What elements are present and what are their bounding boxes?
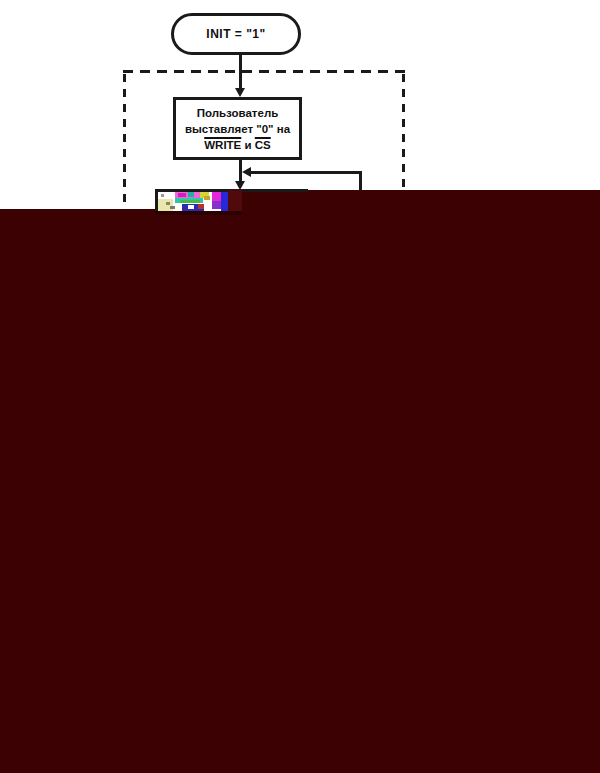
glitch-block xyxy=(212,201,221,209)
glitch-block xyxy=(204,196,210,200)
glitch-block xyxy=(212,192,221,201)
corruption-overlay-left xyxy=(0,209,155,773)
glitch-block xyxy=(198,204,204,209)
glitch-block xyxy=(188,192,194,197)
process-line-2: выставляет "0" на xyxy=(185,121,290,137)
conjunction-label: и xyxy=(245,139,255,151)
feedback-line-horizontal xyxy=(248,171,362,174)
glitch-block xyxy=(188,205,194,209)
process-line-3: WRITE и CS xyxy=(204,137,271,153)
dashed-frame-left xyxy=(123,74,126,209)
glitch-block xyxy=(170,206,175,209)
glitch-block xyxy=(166,202,170,205)
process-line-1: Пользователь xyxy=(197,105,279,121)
glitch-block xyxy=(158,199,173,211)
glitch-block xyxy=(221,192,228,211)
corruption-overlay-right xyxy=(155,190,600,773)
feedback-line-vertical xyxy=(359,171,362,191)
glitch-dark-strip xyxy=(155,211,242,215)
glitch-maroon-patch xyxy=(228,190,242,211)
glitch-block xyxy=(180,200,200,203)
arrowhead-left-icon xyxy=(242,167,251,177)
terminator-init: INIT = "1" xyxy=(171,13,301,55)
signal-write-label: WRITE xyxy=(204,139,241,151)
glitch-block xyxy=(178,193,186,197)
dashed-frame-right xyxy=(402,74,405,190)
terminator-label: INIT = "1" xyxy=(206,27,265,41)
signal-cs-label: CS xyxy=(255,139,271,151)
arrowhead-down-icon xyxy=(235,88,245,97)
glitch-block xyxy=(161,194,164,197)
process-box-user-write: Пользователь выставляет "0" на WRITE и C… xyxy=(173,97,302,160)
scanned-flowchart-page: INIT = "1" Пользователь выставляет "0" н… xyxy=(0,0,600,773)
dashed-frame-top xyxy=(123,70,405,73)
glitch-pixel-strip xyxy=(158,192,228,211)
